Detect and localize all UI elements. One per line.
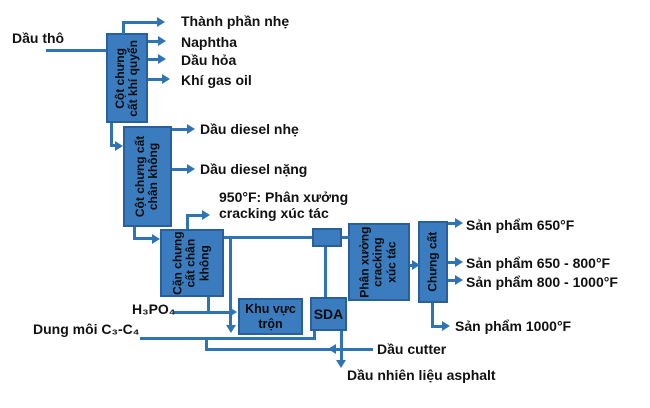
residue-to-cracking-arrow-icon <box>202 210 210 220</box>
naphtha-arrow-icon <box>158 36 166 46</box>
gas-oil-arrow-icon <box>162 74 170 84</box>
atmospheric-column-box: Cột chưng cất khí quyển <box>106 33 148 123</box>
product-800-1000-arrow-icon <box>455 275 463 285</box>
kerosene-label: Dầu hỏa <box>181 53 236 69</box>
heavy-diesel-label: Dầu diesel nặng <box>200 162 307 178</box>
crude-oil-flow-line <box>46 49 106 52</box>
light-diesel-flow-line <box>172 128 188 131</box>
product-1000-arrow-icon <box>442 321 450 331</box>
mixing-area-box: Khu vực trộn <box>238 298 303 335</box>
distillation-label: Chưng cất <box>426 232 439 292</box>
vacuum-column-box: Cột chưng cất chân không <box>123 126 172 227</box>
naphtha-label: Naphtha <box>181 35 237 51</box>
product-650-800-arrow-icon <box>455 257 463 267</box>
product-1000-label: Sản phẩm 1000°F <box>455 319 571 335</box>
gas-oil-flow-line <box>148 78 163 81</box>
atmospheric-column-label: Cột chưng cất khí quyển <box>114 40 141 117</box>
light-diesel-label: Dầu diesel nhẹ <box>200 122 299 138</box>
light-diesel-arrow-icon <box>187 124 195 134</box>
product-650-label: Sản phẩm 650°F <box>466 218 574 234</box>
h3po4-flow-line <box>174 311 230 314</box>
kerosene-arrow-icon <box>158 54 166 64</box>
mixing-area-label: Khu vực trộn <box>245 302 296 331</box>
atm-to-vacuum-arrow-icon <box>115 141 123 151</box>
vacuum-residue-box: Cặn chưng cất chân không <box>160 229 224 297</box>
junction-to-cracking-flow-line <box>342 236 350 239</box>
cracking-note-label: 950°F: Phân xưởng cracking xúc tác <box>219 190 348 221</box>
junction-node-box <box>312 228 342 247</box>
cat-cracking-unit-label: Phân xưởng cracking xúc tác <box>359 226 399 297</box>
solvent-flow-line <box>140 337 316 340</box>
gas-oil-label: Khí gas oil <box>181 73 252 89</box>
sda-unit-box: SDA <box>310 297 347 331</box>
light-components-label: Thành phần nhẹ <box>181 14 289 30</box>
residue-drop-arrow-icon <box>226 325 236 333</box>
refinery-flow-diagram: Cột chưng cất khí quyển Cột chưng cất ch… <box>0 0 650 408</box>
cracking-to-distillation-arrow-icon <box>412 260 420 270</box>
heavy-diesel-arrow-icon <box>187 164 195 174</box>
solvent-label: Dung môi C₃-C₄ <box>33 322 139 338</box>
cutter-oil-flow-line <box>205 348 373 351</box>
product-650-arrow-icon <box>455 218 463 228</box>
vacuum-to-residue-arrow-icon <box>152 234 160 244</box>
cat-cracking-unit-box: Phân xưởng cracking xúc tác <box>348 223 410 301</box>
h3po4-arrow-icon <box>229 307 237 317</box>
sda-to-asphalt-flow-line <box>340 331 343 362</box>
asphalt-fuel-oil-label: Dầu nhiên liệu asphalt <box>347 368 496 384</box>
cutter-oil-label: Dầu cutter <box>377 342 446 358</box>
vacuum-to-residue-flow-line <box>133 237 153 240</box>
distillation-box: Chưng cất <box>418 221 448 303</box>
solvent-to-sda-elbow-line <box>313 331 316 340</box>
vacuum-column-label: Cột chưng cất chân không <box>134 136 161 217</box>
sda-to-asphalt-arrow-icon <box>336 360 346 368</box>
light-components-arrow-icon <box>157 17 165 27</box>
heavy-diesel-flow-line <box>172 168 188 171</box>
sda-unit-label: SDA <box>314 306 344 322</box>
h3po4-label: H₃PO₄ <box>132 302 175 318</box>
light-components-flow-line <box>122 21 158 24</box>
crude-oil-label: Dầu thô <box>12 31 64 47</box>
product-650-800-label: Sản phẩm 650 - 800°F <box>466 256 610 272</box>
junction-to-sda-flow-line <box>324 247 327 297</box>
cutter-oil-arrow-icon <box>328 344 336 354</box>
product-800-1000-label: Sản phẩm 800 - 1000°F <box>466 275 618 291</box>
residue-to-junction-flow-line <box>224 236 312 239</box>
vacuum-residue-label: Cặn chưng cất chân không <box>172 231 212 294</box>
